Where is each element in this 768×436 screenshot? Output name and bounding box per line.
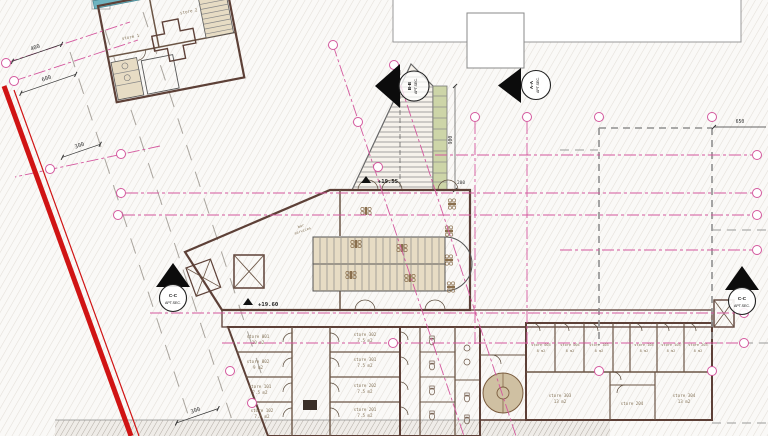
level-entrance: +19.55: [378, 179, 398, 185]
room-area: 8 m2: [667, 349, 676, 353]
floor-plan-canvas: store 1 store 2: [0, 0, 768, 436]
marker-bb-label: APT.SEC.: [414, 78, 418, 94]
corridor-end-wall: [303, 400, 317, 410]
room-area: 7.5 m2: [357, 363, 373, 368]
room-area: 9 m2: [253, 365, 264, 370]
marker-cc-right-name: C-C: [738, 296, 747, 301]
room-label: store 201: [354, 407, 377, 412]
marker-cc-left-label: APT.SEC.: [165, 301, 181, 305]
room-area: 7.5 m2: [254, 414, 270, 419]
level-main: +19.60: [258, 302, 279, 308]
room-area: 7.5 m2: [357, 413, 373, 418]
room-label: store 004: [560, 343, 579, 347]
marker-aa-name: A-A: [529, 80, 534, 89]
room-area: 8 m2: [595, 349, 604, 353]
room-area: 13 m2: [554, 399, 567, 404]
room-label: store 002: [247, 359, 270, 364]
room-label: store 001: [247, 334, 270, 339]
room-label: store 003: [531, 343, 550, 347]
room-label: store 302: [354, 332, 377, 337]
room-label: store 101: [249, 384, 272, 389]
room-label: store 303: [549, 393, 572, 398]
room-area: 7.5 m2: [357, 389, 373, 394]
dim-650: 650: [736, 119, 745, 125]
room-label: store 105: [661, 343, 680, 347]
room-label: store 202: [354, 383, 377, 388]
room-label: store 204: [621, 401, 644, 406]
dim-900: 900: [448, 136, 454, 145]
room-area: 8 m2: [566, 349, 575, 353]
room-area: 13 m2: [678, 399, 691, 404]
room-label: store 102: [251, 408, 274, 413]
marker-cc-right-label: APT.SEC.: [734, 304, 750, 308]
planter-strip: [433, 86, 447, 190]
marker-aa-label: APT.SEC.: [536, 77, 540, 93]
marker-cc-left-name: C-C: [169, 293, 178, 298]
room-area: 8 m2: [694, 349, 703, 353]
room-label: store 301: [354, 357, 377, 362]
room-area: 8 m2: [640, 349, 649, 353]
room-label: store 104: [634, 343, 653, 347]
floor-plan-svg: store 1 store 2: [0, 0, 768, 436]
room-area: 8 m2: [537, 349, 546, 353]
room-area: 7.5 m2: [252, 390, 268, 395]
marker-bb-name: B-B: [407, 81, 412, 90]
room-area: 7.5 m2: [357, 338, 373, 343]
room-label: store 203: [688, 343, 707, 347]
room-label: store 304: [673, 393, 696, 398]
room-area: 10 m2: [252, 340, 265, 345]
dim-200: 200: [457, 180, 465, 186]
